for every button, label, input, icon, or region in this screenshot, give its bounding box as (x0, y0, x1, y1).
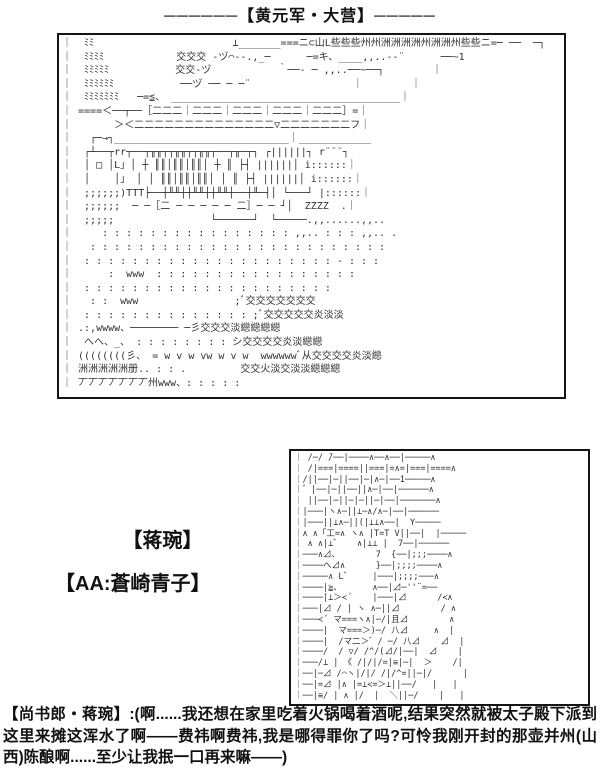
scene-title: ──────【黄元军・大营】───── (0, 2, 600, 26)
comic-page: ──────【黄元军・大营】───── ｜ ﾐﾐ ⊥_______===ニ⊂山L… (0, 0, 600, 770)
ascii-art-panel-camp: ｜ ﾐﾐ ⊥_______===ニ⊂山L些些些州州洲洲洲洲州洲洲州些些ニ=─ ─… (57, 33, 566, 399)
character-name-label: 【蒋琬】 (55, 524, 270, 553)
aa-credit-label: 【AA:蒼崎青子】 (55, 567, 270, 596)
caption-block: 【蒋琬】 【AA:蒼崎青子】 (55, 524, 270, 596)
ascii-art-panel-portrait: ｜ /─/ ̄/──|────∧──∧──|─────∧ ｜ /|===|===… (289, 449, 590, 706)
portrait-ascii-art: ｜ /─/ ̄/──|────∧──∧──|─────∧ ｜ /|===|===… (291, 451, 588, 701)
camp-ascii-art: ｜ ﾐﾐ ⊥_______===ニ⊂山L些些些州州洲洲洲洲州洲洲州些些ニ=─ ─… (59, 35, 564, 390)
dialogue-text: 【尚书郎・蒋琬】:(啊......我还想在家里吃着火锅喝着酒呢,结果突然就被太子… (3, 704, 597, 769)
